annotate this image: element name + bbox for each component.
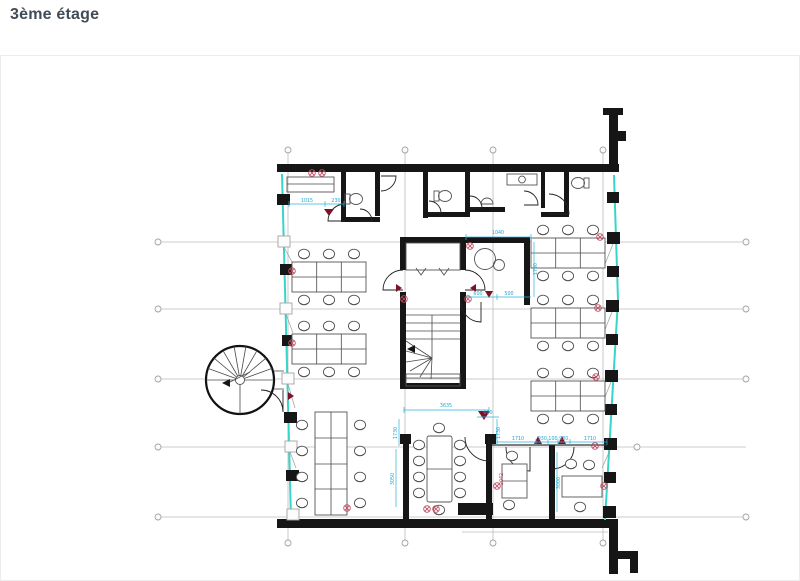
dimension-label: 1730 (533, 263, 539, 275)
spiral-staircase (206, 346, 284, 414)
sanitary-rooms (328, 168, 589, 222)
dimension-label: 1730 (393, 427, 399, 439)
dimension-label: 2042 (499, 473, 505, 485)
private-offices (492, 445, 607, 520)
sink-counter (507, 174, 537, 185)
dimension-label: 1710 (512, 436, 524, 442)
central-staircase (406, 315, 460, 386)
desk-cluster-bottom-left (296, 412, 365, 515)
meeting-table (427, 436, 452, 502)
dimension-label: 3635 (440, 403, 452, 409)
dimension-label: 1040 (492, 230, 504, 236)
dimension-label: 1730 (496, 427, 502, 439)
sink-icon (481, 198, 493, 204)
desk-cluster-left (292, 249, 366, 377)
office-desk (562, 476, 602, 497)
floor-plan: 1015230104017306005003635600173030501730… (0, 0, 800, 581)
elevator (406, 243, 460, 275)
dimension-label: 3050 (390, 473, 396, 485)
dimension-label: 930 100 930 (538, 436, 569, 442)
desk-cluster-right (531, 225, 605, 424)
office-desk (502, 464, 527, 498)
dimension-label: 1710 (584, 436, 596, 442)
dimension-label: 500 (504, 291, 513, 297)
dimension-label: 230 (331, 198, 340, 204)
toilet-icon (572, 178, 590, 189)
toilet-icon (434, 191, 452, 202)
dimension-label: 600 (483, 410, 492, 416)
dimension-label: 1015 (301, 198, 313, 204)
toilet-icon (345, 194, 363, 205)
stair-core (383, 237, 485, 389)
page: 3ème étage (0, 0, 800, 581)
dimension-label: 600 (473, 291, 482, 297)
kitchenette-room (287, 177, 334, 192)
dimension-label: 3000 (556, 477, 562, 489)
